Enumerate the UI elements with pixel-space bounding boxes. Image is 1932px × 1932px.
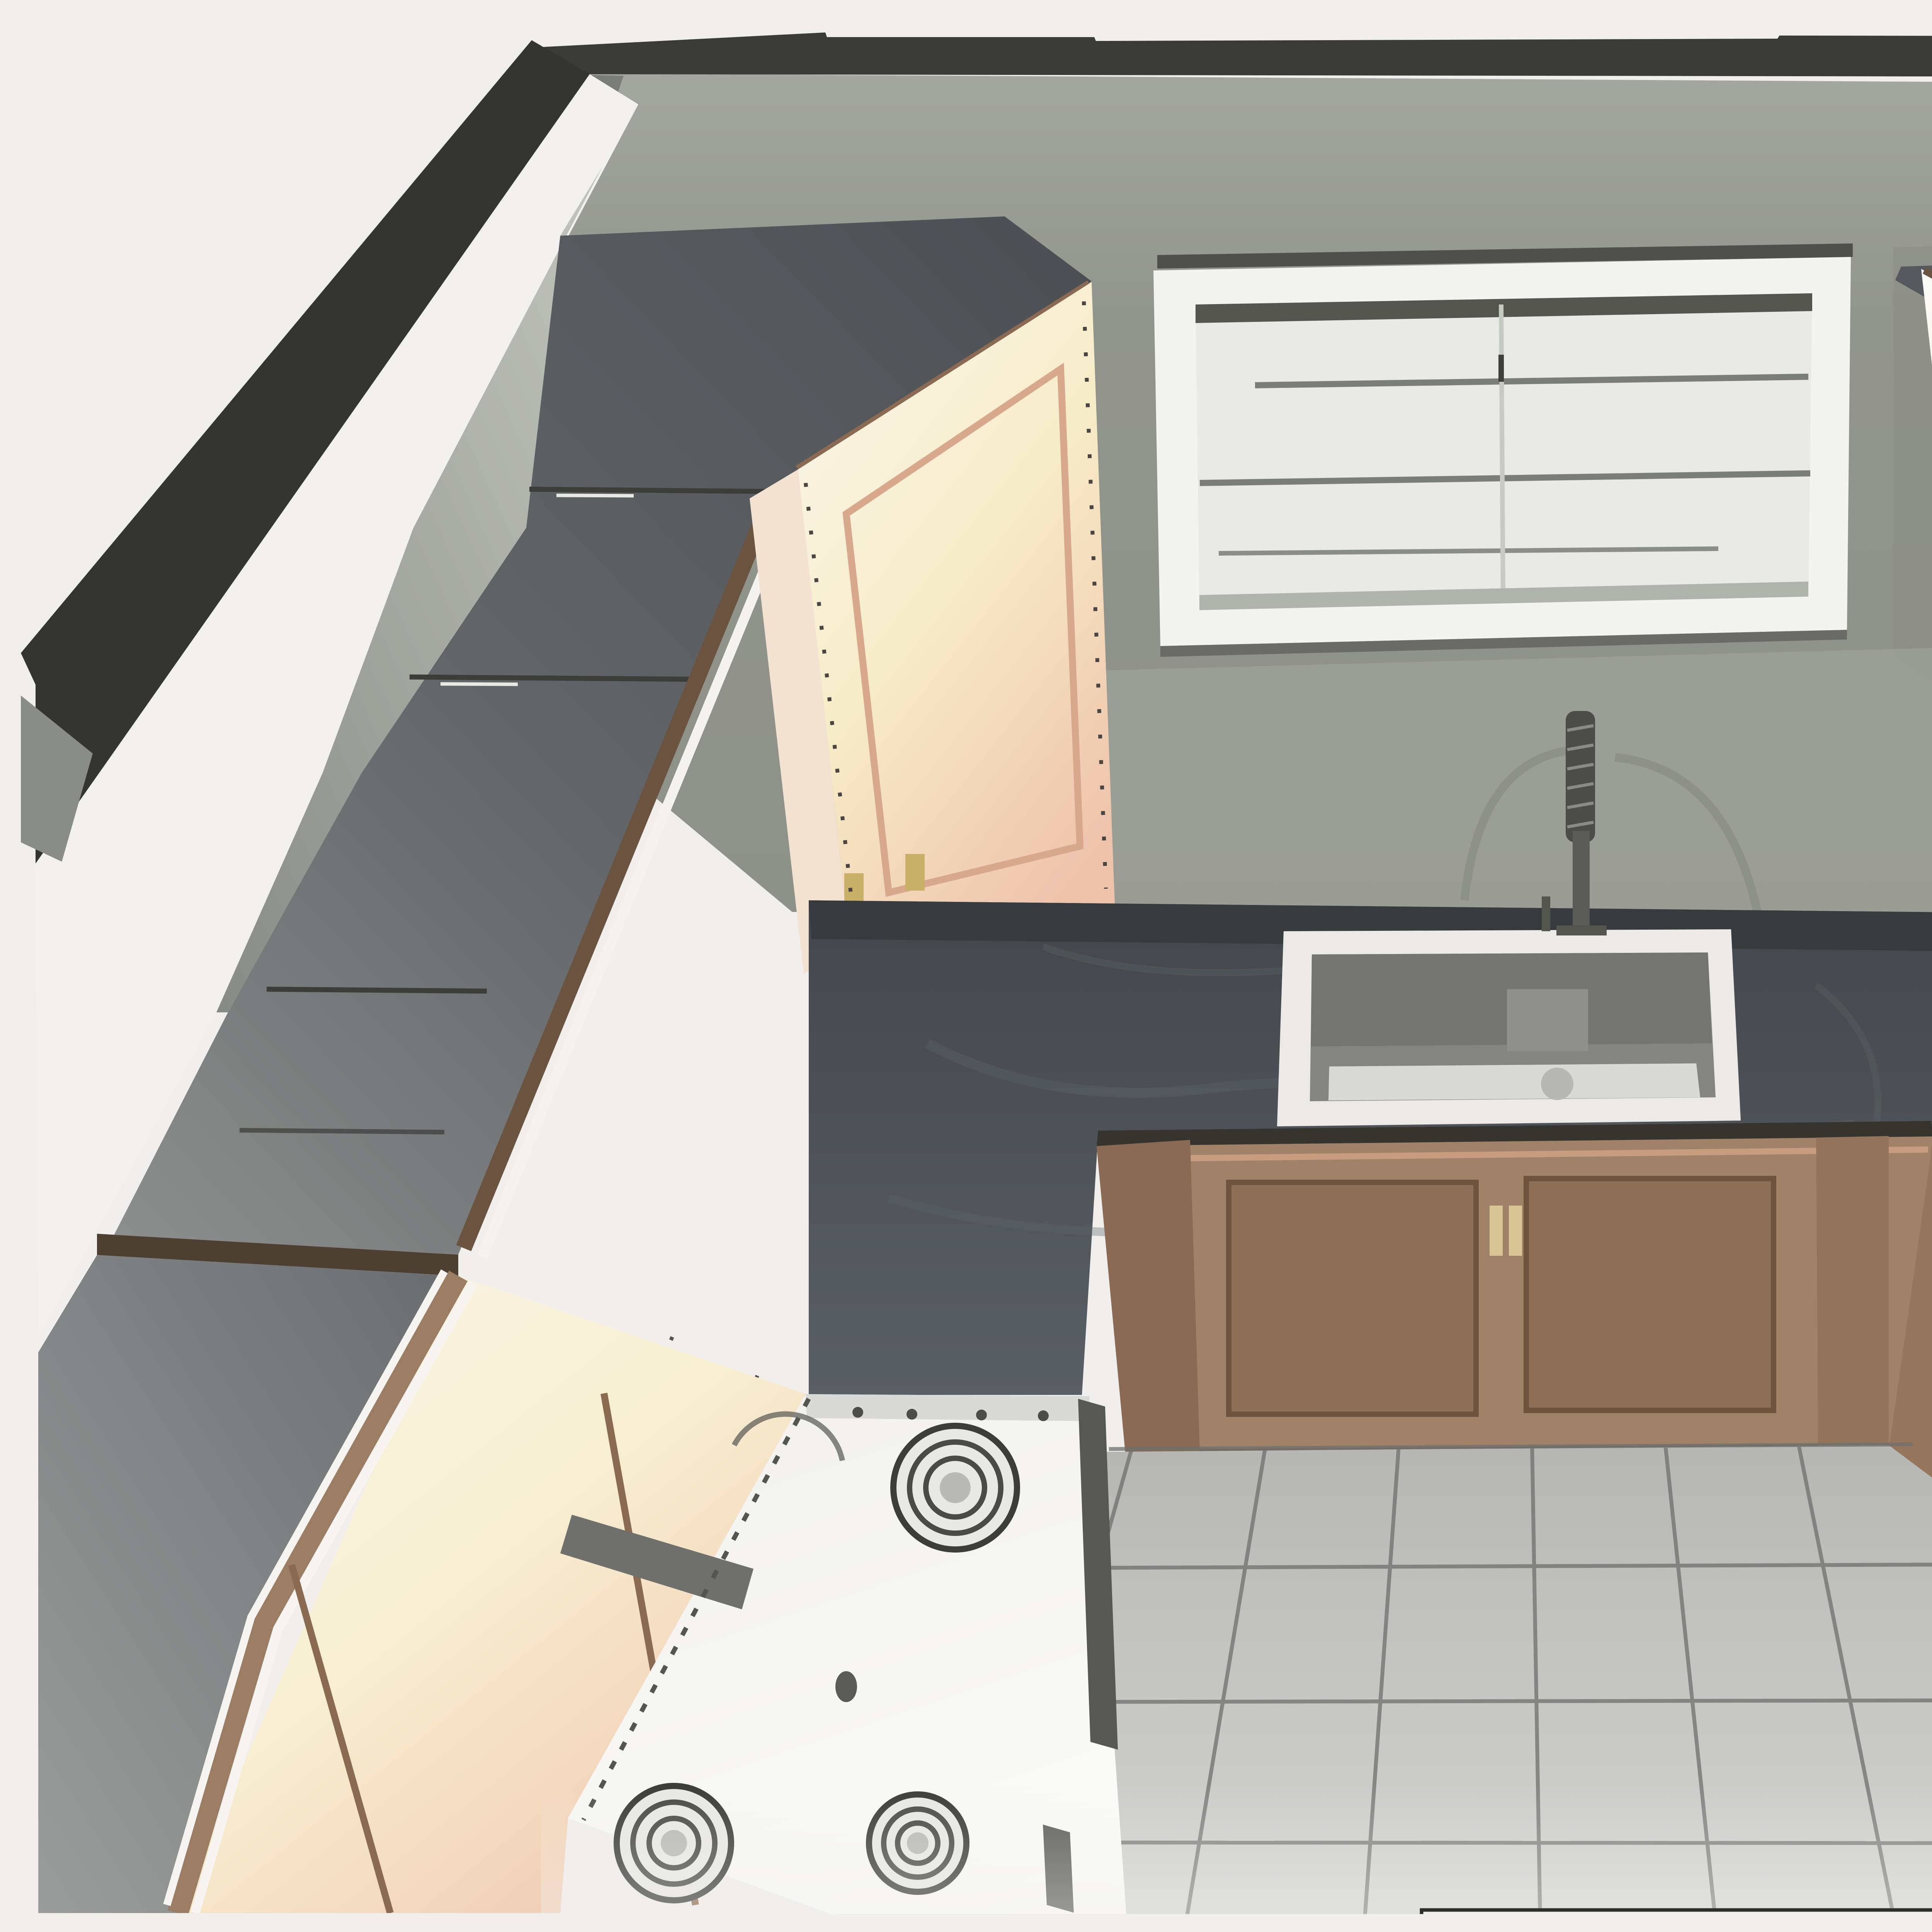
svg-text:Note: This drawing is an artis: Note: This drawing is an artistic (1438, 1915, 1932, 1932)
